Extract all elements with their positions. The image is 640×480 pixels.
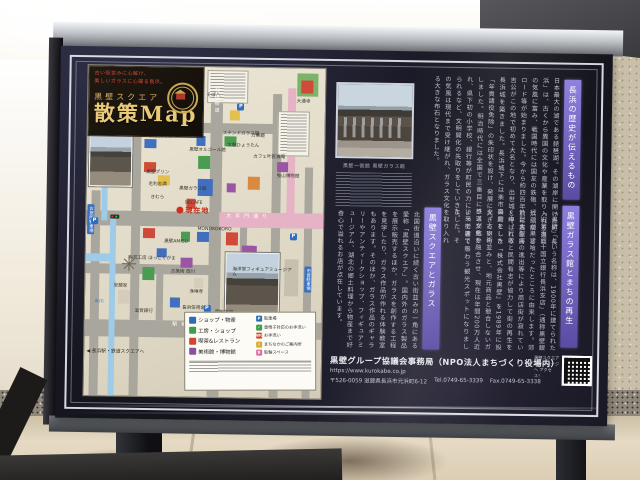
photo-fine-print xyxy=(335,172,412,207)
legend-category-label: 喫茶&レストラン xyxy=(198,337,240,345)
telephone: Tel.0749-65-3339 xyxy=(434,378,483,387)
map-label: 古美術 西川 xyxy=(171,269,196,275)
legend-category-row: ショップ・物産 xyxy=(189,316,252,324)
kurokabe-glass-house-photo xyxy=(335,82,414,159)
legend-facility-label: 車椅子対応のお手洗い xyxy=(264,324,306,330)
map-label: 曳山博物館 xyxy=(276,174,299,180)
section-heading-square: 黒壁スクエアとガラス xyxy=(422,207,441,349)
facility-icon: i xyxy=(256,341,262,347)
signboard-face: 黒壁体験教室レストランROKUそば八大通寺ステンドガラス館太閤ひょうたん万華鏡黒… xyxy=(55,46,613,427)
map-label: 市営駐車場 xyxy=(304,267,311,293)
section-body-square: 北国街道沿いに続く古い街並みの一角にある愛称「黒壁スクエア」。国内外のガラス製品… xyxy=(330,210,420,349)
map-note-box xyxy=(277,111,310,157)
qr-code xyxy=(562,356,592,386)
legend-category-row: 喫茶&レストラン xyxy=(189,337,252,345)
current-location-marker: 現在地 xyxy=(176,205,209,216)
legend-facility-row: iまちなかのご案内所 xyxy=(256,341,311,347)
strolling-map-panel: 黒壁体験教室レストランROKUそば八大通寺ステンドガラス館太閤ひょうたん万華鏡黒… xyxy=(82,64,326,400)
map-building-block xyxy=(118,290,130,303)
map-building-block xyxy=(144,139,156,149)
map-building-block xyxy=(198,156,210,169)
current-location-dot xyxy=(176,207,183,214)
section-heading-rebirth: 黒壁ガラス館とまちの再生 xyxy=(560,206,579,348)
street-photo-inset xyxy=(89,131,132,186)
category-color-swatch xyxy=(189,348,196,355)
map-street xyxy=(156,264,164,320)
map-label: 浄琳寺 xyxy=(189,289,203,294)
map-label: 海洋堂フィギュアミュージアム xyxy=(232,267,294,279)
photo-of-information-signboard: 黒壁体験教室レストランROKUそば八大通寺ステンドガラス館太閤ひょうたん万華鏡黒… xyxy=(0,0,640,480)
map-building-block xyxy=(226,183,236,193)
traffic-signal-icon xyxy=(110,214,119,218)
facility-icon: B xyxy=(256,350,262,356)
legend-facility-row: ✓車椅子対応のお手洗い xyxy=(256,324,311,330)
parking-icon: P xyxy=(290,233,297,240)
legend-facility-row: B駐輪スペース xyxy=(256,350,311,356)
map-label: カフェ叶匠壽庵 xyxy=(253,155,285,161)
compass-icon xyxy=(121,257,135,271)
map-building-block xyxy=(194,278,204,288)
map-building-block xyxy=(230,110,240,120)
legend-facility-label: お手洗い xyxy=(264,333,281,339)
legend-category-row: 美術館・博物館 xyxy=(189,347,252,355)
qr-block: 黒壁スクエア ホームページへ アクセス！ xyxy=(534,355,596,386)
map-building-block xyxy=(143,228,155,238)
map-label: ◀ 長浜駅・鉄道スクエアへ xyxy=(86,349,144,355)
map-building-block xyxy=(142,267,154,280)
legend-category-row: 工房・ショップ xyxy=(189,326,252,334)
map-label: 黒壁ガラス館 xyxy=(179,187,207,193)
article-panel: 黒壁一號館 黒壁ガラス館 長浜の歴史が伝えるもの 日本最大の湖である琵琶湖。その… xyxy=(329,70,600,414)
current-location-label: 現在地 xyxy=(185,205,209,215)
legend-facility-label: 駐輪スペース xyxy=(264,350,289,356)
map-label: 滋賀銀行 xyxy=(135,308,153,314)
map-label: 黒壁AMISU xyxy=(164,240,188,246)
section-body-rebirth: 「黒壁」という名称は、1900年に建てられた「旧第百三十国立銀行長浜支店」（通称… xyxy=(438,208,558,352)
parking-icon: P xyxy=(91,217,98,224)
legend-facility-row: P駐車場 xyxy=(256,316,311,322)
photo-caption: 黒壁一號館 黒壁ガラス館 xyxy=(335,162,413,170)
map-label: 大通寺 xyxy=(297,100,311,105)
legend-facility-row: WCお手洗い xyxy=(256,333,311,339)
building-glyph xyxy=(176,94,185,100)
legend-facilities: P駐車場✓車椅子対応のお手洗いWCお手洗いiまちなかのご案内所B駐輪スペース xyxy=(256,316,311,359)
category-color-swatch xyxy=(189,316,196,323)
legend-facility-label: まちなかのご案内所 xyxy=(264,341,302,347)
map-river xyxy=(107,217,116,395)
map-building-block xyxy=(226,232,238,245)
title-panel: 古い街並みに心解け、 美しいガラスに心躍る長浜。 黒壁スクエア 散策Map xyxy=(88,65,205,138)
parking-icon: P xyxy=(237,104,244,111)
map-building-block xyxy=(180,258,192,268)
qr-caption: 黒壁スクエア ホームページへ アクセス！ xyxy=(534,355,560,385)
legend-categories: ショップ・物産工房・ショップ喫茶&レストラン美術館・博物館 xyxy=(189,316,252,359)
contact-footer: 黒壁グループ協議会事務局（NPO法人まちづくり役場内） https://www.… xyxy=(330,354,596,388)
legend-facility-label: 駐車場 xyxy=(264,316,277,322)
map-label: 太閤ひょうたん xyxy=(227,143,259,149)
map-label: 黒壁オルゴール館 xyxy=(189,148,226,154)
map-label: 北国街道 xyxy=(213,87,219,114)
section-heading-history: 長浜の歴史が伝えるもの xyxy=(563,80,582,200)
map-building-block xyxy=(302,80,314,93)
map-building-block xyxy=(277,162,289,172)
postal-address: 〒526-0059 滋賀県長浜市元浜町6-12 xyxy=(330,376,427,386)
map-label: MONOKOKORO xyxy=(197,227,231,233)
map-building-block xyxy=(197,232,209,242)
signboard: 黒壁体験教室レストランROKUそば八大通寺ステンドガラス館太閤ひょうたん万華鏡黒… xyxy=(55,46,613,427)
facility-icon: WC xyxy=(256,333,262,339)
legend-category-label: 工房・ショップ xyxy=(198,326,236,334)
map-label: きむら xyxy=(151,195,165,200)
map-label: 黒壁プリン xyxy=(146,170,169,176)
legend-category-label: 美術館・博物館 xyxy=(198,347,236,355)
category-color-swatch xyxy=(189,327,196,334)
map-label: 米川 xyxy=(94,300,103,305)
map-legend: ショップ・物産工房・ショップ喫茶&レストラン美術館・博物館 P駐車場✓車椅子対応… xyxy=(184,312,316,391)
parking-icon: P xyxy=(203,305,210,312)
map-label: 大手門通り xyxy=(226,214,271,220)
legend-category-label: ショップ・物産 xyxy=(198,316,236,324)
map-label: 陶芸工房 ほっこくがま xyxy=(128,256,175,262)
legend-fine-print xyxy=(189,360,311,372)
map-label: 万華鏡 xyxy=(251,134,265,139)
map-label: 安藤家 xyxy=(114,283,128,288)
fine-print xyxy=(280,114,307,154)
facility-icon: P xyxy=(256,316,262,322)
map-building-block xyxy=(248,177,260,190)
map-building-block xyxy=(170,297,180,307)
map-label: 毛利志満 xyxy=(148,182,166,188)
map-river xyxy=(86,253,112,262)
category-color-swatch xyxy=(189,337,196,344)
facility-icon: ✓ xyxy=(256,324,262,330)
